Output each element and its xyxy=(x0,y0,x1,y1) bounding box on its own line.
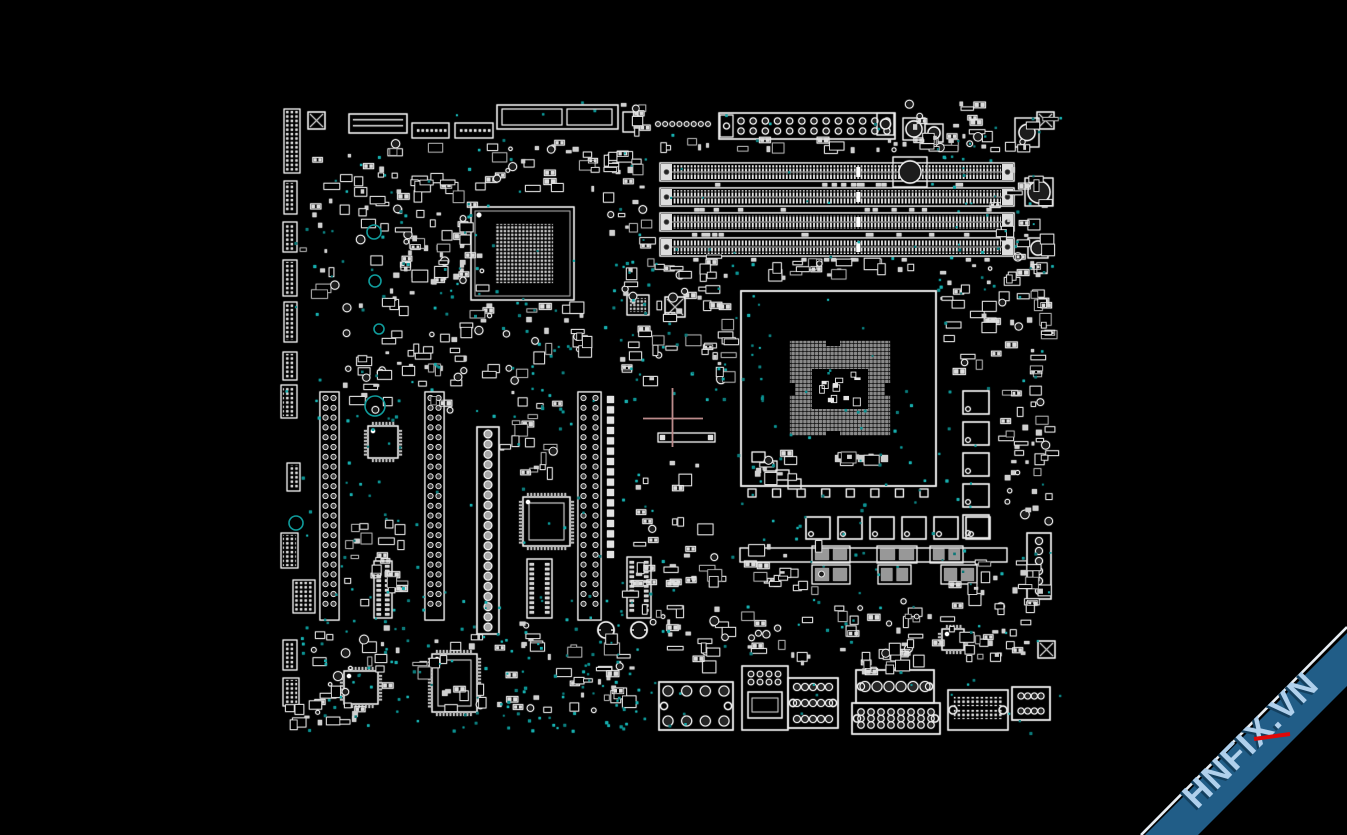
dimm-slot[interactable] xyxy=(660,213,1014,231)
dimm-slot[interactable] xyxy=(660,188,1014,206)
pin-header[interactable] xyxy=(283,260,297,296)
boardview-window: HNFIX.VN HNFIX.VN xyxy=(0,0,1347,835)
pci-slot[interactable] xyxy=(578,392,601,620)
pin-header[interactable] xyxy=(281,533,298,568)
pin-header[interactable] xyxy=(283,222,297,252)
dimm-slot[interactable] xyxy=(660,163,1014,181)
pin-header[interactable] xyxy=(283,678,299,706)
pin-header[interactable] xyxy=(284,109,300,173)
mounting-hole xyxy=(631,622,647,638)
dimm-slot[interactable] xyxy=(660,238,1014,256)
boardview-canvas[interactable]: HNFIX.VN HNFIX.VN xyxy=(0,0,1347,835)
pci-slot[interactable] xyxy=(425,392,444,620)
pin-header[interactable] xyxy=(281,385,297,418)
pin-header[interactable] xyxy=(293,580,315,613)
pin-header[interactable] xyxy=(283,352,297,380)
pci-slot[interactable] xyxy=(320,392,339,620)
pin-header[interactable] xyxy=(283,640,297,670)
